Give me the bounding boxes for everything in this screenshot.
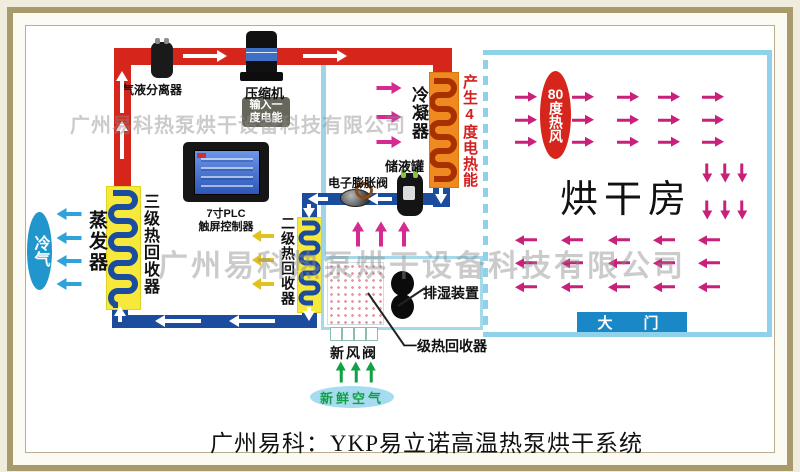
right-flow-arrow-icon — [702, 137, 724, 148]
left-flow-arrow-icon — [608, 282, 630, 293]
left-flow-arrow-icon — [653, 258, 675, 269]
left-flow-arrow-icon — [561, 258, 583, 269]
right-flow-arrow-icon — [303, 50, 347, 62]
right-flow-arrow-icon — [617, 92, 639, 103]
down-flow-arrow-icon — [702, 201, 713, 220]
left-flow-arrow-icon — [698, 258, 720, 269]
up-flow-arrow-icon — [336, 362, 347, 383]
right-flow-arrow-icon — [658, 92, 680, 103]
right-flow-arrow-icon — [658, 137, 680, 148]
down-flow-arrow-icon — [303, 307, 315, 321]
up-flow-arrow-icon — [352, 222, 364, 247]
left-flow-arrow-icon — [608, 258, 630, 269]
right-flow-arrow-icon — [658, 115, 680, 126]
left-flow-arrow-icon — [252, 230, 274, 242]
left-flow-arrow-icon — [515, 235, 537, 246]
down-flow-arrow-icon — [720, 201, 731, 220]
up-flow-arrow-icon — [114, 306, 126, 322]
right-flow-arrow-icon — [702, 92, 724, 103]
left-flow-arrow-icon — [368, 193, 392, 205]
right-flow-arrow-icon — [572, 115, 594, 126]
up-flow-arrow-icon — [116, 121, 128, 159]
up-flow-arrow-icon — [375, 222, 387, 247]
right-flow-arrow-icon — [515, 92, 537, 103]
flow-arrows-layer — [0, 0, 800, 472]
right-flow-arrow-icon — [515, 137, 537, 148]
left-flow-arrow-icon — [515, 258, 537, 269]
diagram-page: 冷气 80 度热风 新鲜空气 大 门 输入一 度电能 气液分离器 压缩机 7寸P… — [0, 0, 800, 472]
up-flow-arrow-icon — [351, 362, 362, 383]
right-flow-arrow-icon — [183, 50, 227, 62]
left-flow-arrow-icon — [57, 232, 82, 244]
left-flow-arrow-icon — [561, 282, 583, 293]
right-flow-arrow-icon — [377, 136, 402, 148]
left-flow-arrow-icon — [698, 282, 720, 293]
up-flow-arrow-icon — [398, 222, 410, 247]
left-flow-arrow-icon — [57, 278, 82, 290]
right-flow-arrow-icon — [515, 115, 537, 126]
left-flow-arrow-icon — [608, 235, 630, 246]
left-flow-arrow-icon — [155, 315, 201, 327]
left-flow-arrow-icon — [252, 278, 274, 290]
down-flow-arrow-icon — [737, 201, 748, 220]
right-flow-arrow-icon — [702, 115, 724, 126]
left-flow-arrow-icon — [698, 235, 720, 246]
right-flow-arrow-icon — [617, 137, 639, 148]
down-flow-arrow-icon — [435, 188, 447, 204]
left-flow-arrow-icon — [653, 235, 675, 246]
right-flow-arrow-icon — [377, 82, 402, 94]
down-flow-arrow-icon — [737, 164, 748, 183]
right-flow-arrow-icon — [377, 111, 402, 123]
right-flow-arrow-icon — [572, 137, 594, 148]
left-flow-arrow-icon — [57, 255, 82, 267]
left-flow-arrow-icon — [57, 208, 82, 220]
right-flow-arrow-icon — [572, 92, 594, 103]
left-flow-arrow-icon — [515, 282, 537, 293]
left-flow-arrow-icon — [561, 235, 583, 246]
left-flow-arrow-icon — [653, 282, 675, 293]
right-flow-arrow-icon — [617, 115, 639, 126]
down-flow-arrow-icon — [720, 164, 731, 183]
up-flow-arrow-icon — [366, 362, 377, 383]
up-flow-arrow-icon — [116, 71, 128, 113]
left-flow-arrow-icon — [229, 315, 275, 327]
down-flow-arrow-icon — [303, 204, 315, 218]
left-flow-arrow-icon — [252, 254, 274, 266]
down-flow-arrow-icon — [702, 164, 713, 183]
